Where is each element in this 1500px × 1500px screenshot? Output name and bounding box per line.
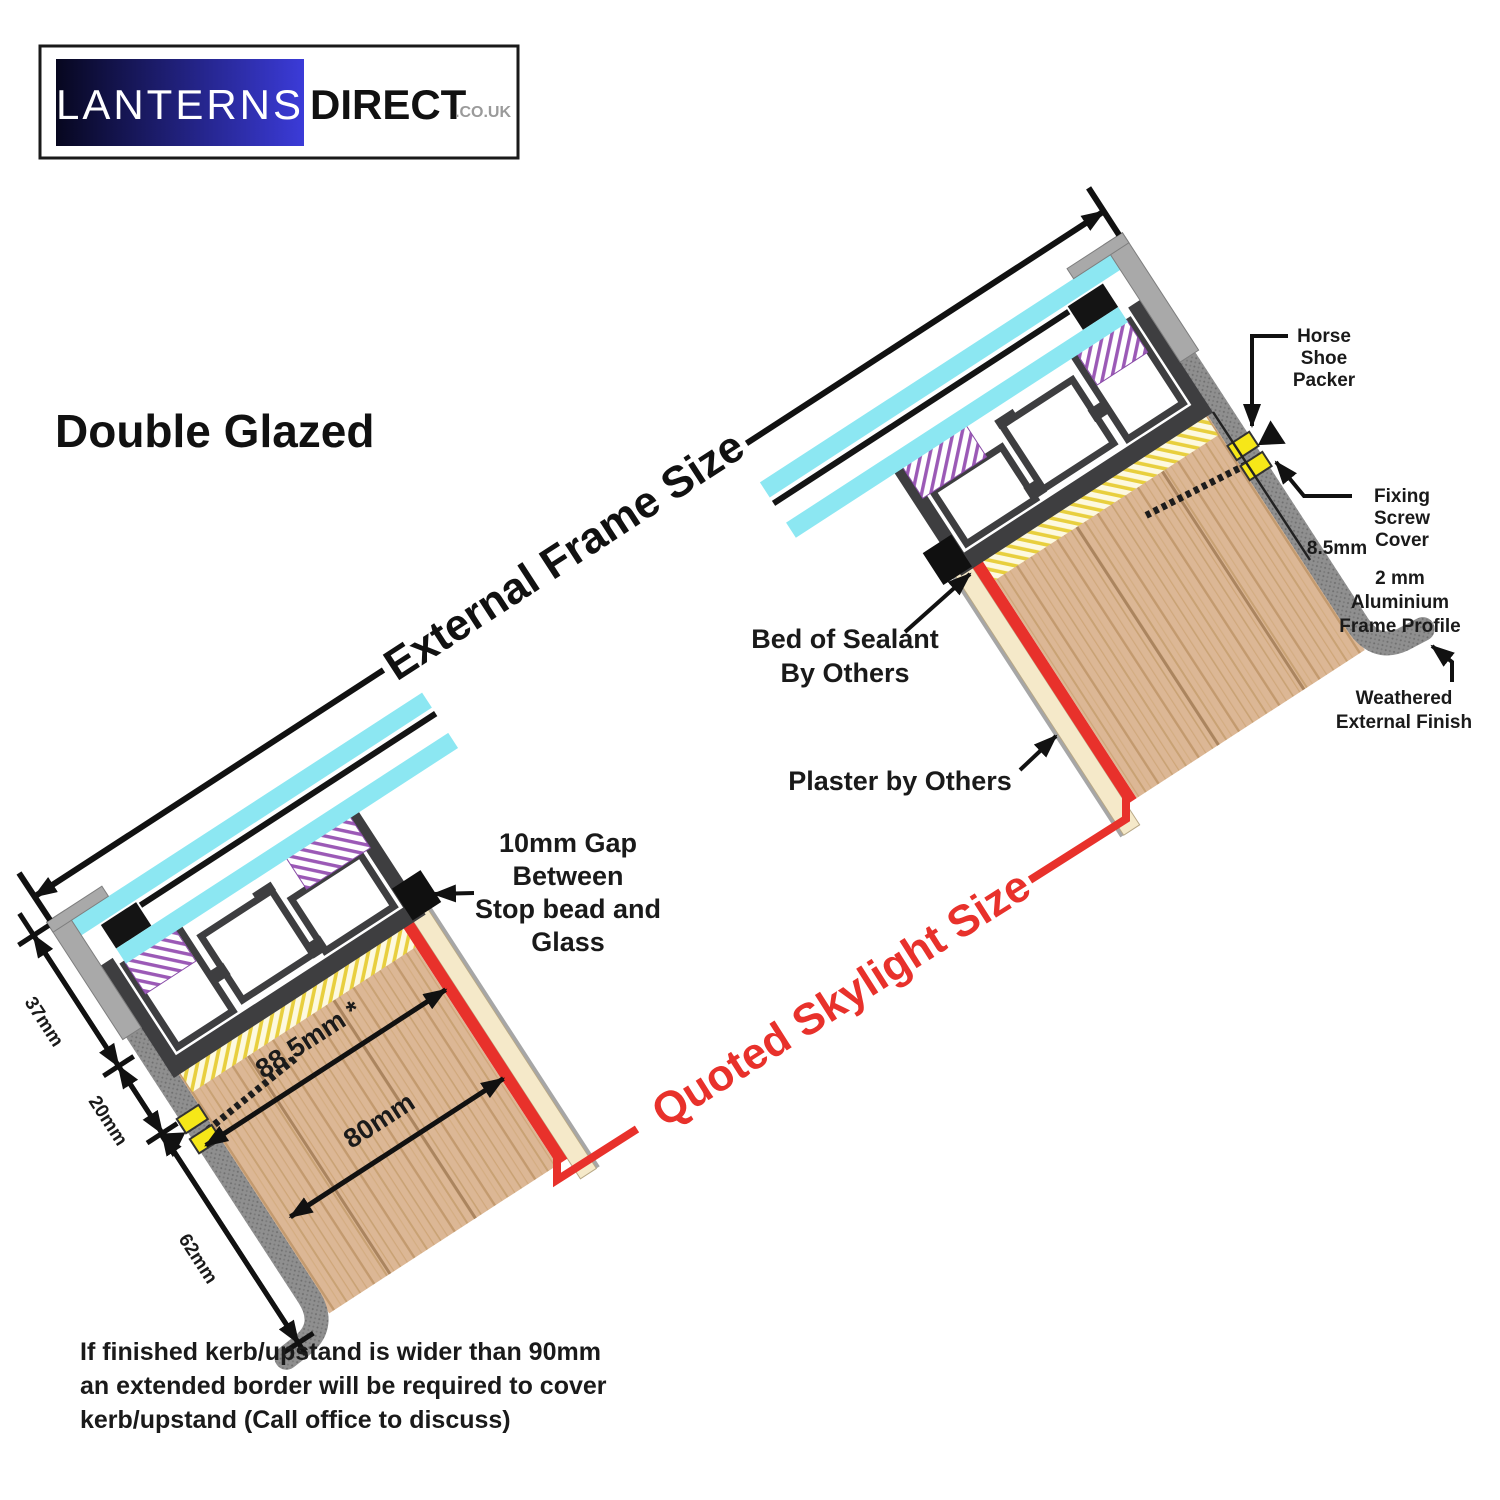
bed-of-sealant-line1: Bed of Sealant <box>751 624 939 654</box>
gap-10mm-line1: 10mm Gap <box>499 828 637 858</box>
alu-profile-line2: Aluminium <box>1351 592 1449 613</box>
gap-10mm-line2: Between <box>512 861 623 891</box>
alu-profile-line3: Frame Profile <box>1339 616 1460 637</box>
gap-10mm-line4: Glass <box>531 927 605 957</box>
horse-shoe-line1: Horse <box>1297 326 1351 347</box>
diagram-svg: LANTERNS DIRECT .CO.UK Double Glazed Ext… <box>0 0 1500 1500</box>
alu-profile-line1: 2 mm <box>1375 568 1425 589</box>
dimension-tick <box>1089 188 1119 235</box>
fixing-screw-line1: Fixing <box>1374 486 1430 507</box>
callout-weathered-finish: Weathered External Finish <box>1336 646 1472 733</box>
horse-shoe-line2: Shoe <box>1301 348 1347 369</box>
gap-10mm-line3: Stop bead and <box>475 894 661 924</box>
dim-20mm: 20mm <box>84 1092 132 1149</box>
logo: LANTERNS DIRECT .CO.UK <box>40 46 518 158</box>
logo-text-secondary: DIRECT <box>310 81 467 128</box>
horse-shoe-line3: Packer <box>1293 370 1356 391</box>
quoted-skylight-size-label: Quoted Skylight Size <box>643 861 1039 1137</box>
callout-10mm-gap: 10mm Gap Between Stop bead and Glass <box>434 828 661 957</box>
plaster-label: Plaster by Others <box>788 766 1012 796</box>
callout-plaster: Plaster by Others <box>788 736 1056 796</box>
external-frame-size-label: External Frame Size <box>375 421 752 690</box>
weathered-line2: External Finish <box>1336 712 1472 733</box>
logo-text-primary: LANTERNS <box>56 81 304 128</box>
quoted-skylight-dimension: Quoted Skylight Size <box>557 793 1126 1180</box>
weathered-line1: Weathered <box>1356 688 1453 709</box>
footnote-line1: If finished kerb/upstand is wider than 9… <box>80 1338 601 1366</box>
dimension-tick <box>19 873 50 920</box>
bed-of-sealant-line2: By Others <box>780 658 909 688</box>
callout-horse-shoe-packer: Horse Shoe Packer <box>1252 326 1356 426</box>
page-title: Double Glazed <box>55 405 374 457</box>
fixing-screw-line3: Cover <box>1375 530 1429 551</box>
footnote-line3: kerb/upstand (Call office to discuss) <box>80 1406 511 1434</box>
dim-62mm: 62mm <box>174 1230 222 1287</box>
logo-text-tld: .CO.UK <box>455 104 511 121</box>
fixing-screw-line2: Screw <box>1374 508 1430 529</box>
skylight-section-diagram: LANTERNS DIRECT .CO.UK Double Glazed Ext… <box>0 0 1500 1500</box>
dim-8-5mm: 8.5mm <box>1307 538 1367 559</box>
callout-bed-of-sealant: Bed of Sealant By Others <box>751 574 970 688</box>
footnote: If finished kerb/upstand is wider than 9… <box>80 1338 607 1434</box>
footnote-line2: an extended border will be required to c… <box>80 1372 607 1400</box>
dim-37mm: 37mm <box>20 993 68 1050</box>
